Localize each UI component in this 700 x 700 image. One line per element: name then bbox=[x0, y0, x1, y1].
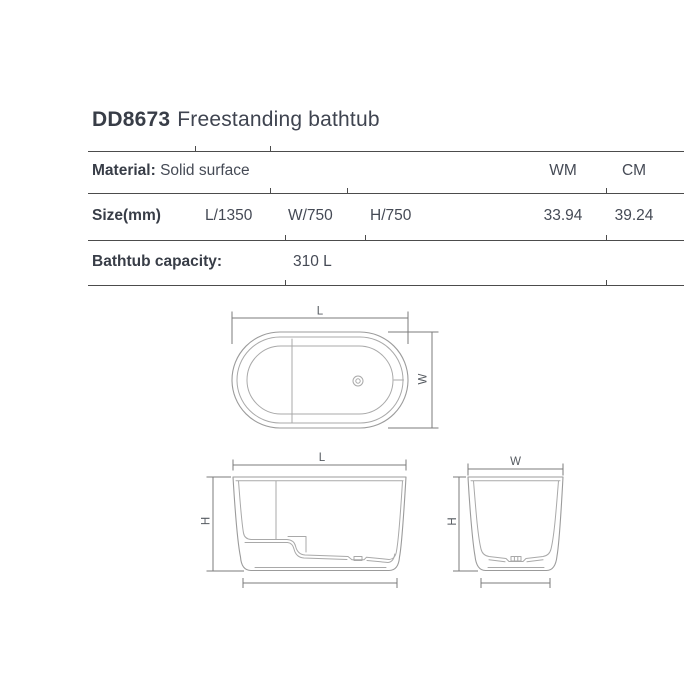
front-inner-profile bbox=[239, 481, 403, 560]
table-rule-bottom bbox=[88, 285, 684, 286]
front-view-bottom-dimension bbox=[243, 578, 397, 588]
side-view-drawing: W H bbox=[440, 448, 575, 596]
capacity-label: Bathtub capacity: bbox=[92, 253, 222, 271]
tub-basin-outline bbox=[247, 346, 393, 414]
material-value: Solid surface bbox=[160, 162, 250, 179]
drain-inner-circle bbox=[356, 379, 360, 383]
size-wm-value: 33.94 bbox=[532, 207, 594, 225]
table-rule-3 bbox=[88, 240, 684, 241]
capacity-value: 310 L bbox=[293, 253, 332, 271]
size-width: W/750 bbox=[288, 207, 333, 225]
top-view-drawing: L W bbox=[200, 296, 450, 442]
top-view-length-label: L bbox=[317, 306, 324, 318]
column-tick bbox=[606, 235, 607, 240]
column-tick bbox=[285, 280, 286, 285]
size-label: Size(mm) bbox=[92, 207, 161, 225]
front-view-length-dimension: L bbox=[233, 452, 406, 471]
side-view-width-label: W bbox=[510, 456, 521, 468]
top-view-length-dimension: L bbox=[232, 306, 408, 345]
material-label: Material: bbox=[92, 162, 156, 179]
unit-header-cm: CM bbox=[603, 162, 665, 180]
column-tick bbox=[606, 188, 607, 193]
front-view-height-label: H bbox=[201, 517, 213, 525]
product-name: Freestanding bathtub bbox=[177, 108, 379, 131]
material-row: Material: Solid surface bbox=[92, 162, 250, 180]
spec-sheet: DD8673Freestanding bathtub Material: Sol… bbox=[0, 0, 700, 700]
top-view-width-label: W bbox=[418, 373, 430, 384]
table-rule-top bbox=[88, 151, 684, 152]
column-tick bbox=[270, 188, 271, 193]
front-inner-profile-thickness bbox=[245, 543, 395, 563]
size-height: H/750 bbox=[370, 207, 411, 225]
front-tub-outer-shell bbox=[233, 477, 406, 571]
front-view-drawing: L H bbox=[195, 448, 420, 596]
column-tick bbox=[285, 235, 286, 240]
column-tick bbox=[365, 235, 366, 240]
column-tick bbox=[347, 188, 348, 193]
side-view-bottom-dimension bbox=[481, 578, 550, 588]
size-length: L/1350 bbox=[205, 207, 252, 225]
side-view-height-label: H bbox=[447, 517, 459, 525]
front-view-height-dimension: H bbox=[201, 477, 245, 571]
size-cm-value: 39.24 bbox=[603, 207, 665, 225]
column-tick bbox=[606, 280, 607, 285]
column-tick bbox=[270, 146, 271, 151]
front-view-length-label: L bbox=[319, 452, 326, 464]
column-tick bbox=[195, 146, 196, 151]
table-rule-2 bbox=[88, 193, 684, 194]
side-view-width-dimension: W bbox=[468, 456, 563, 476]
side-view-height-dimension: H bbox=[447, 477, 478, 571]
product-model: DD8673 bbox=[92, 108, 170, 131]
side-inner-profile bbox=[474, 481, 559, 562]
tub-rim-outline bbox=[237, 337, 403, 423]
unit-header-wm: WM bbox=[532, 162, 594, 180]
drain-outer-circle bbox=[353, 376, 363, 386]
page-title: DD8673Freestanding bathtub bbox=[92, 108, 380, 132]
side-drain bbox=[511, 557, 521, 562]
